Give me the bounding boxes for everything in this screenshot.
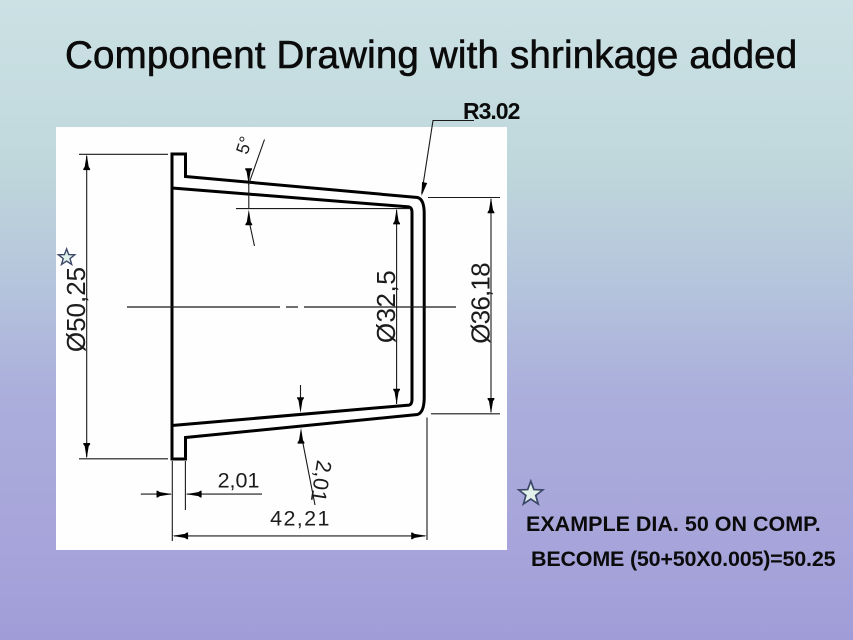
svg-text:2,01: 2,01	[218, 469, 260, 493]
svg-text:42,21: 42,21	[270, 507, 331, 531]
svg-text:Ø32,5: Ø32,5	[371, 270, 401, 343]
svg-text:2,01: 2,01	[306, 459, 336, 504]
svg-text:Ø50,25: Ø50,25	[61, 267, 91, 352]
svg-text:5°: 5°	[232, 134, 256, 157]
svg-text:Ø36,18: Ø36,18	[466, 263, 496, 344]
